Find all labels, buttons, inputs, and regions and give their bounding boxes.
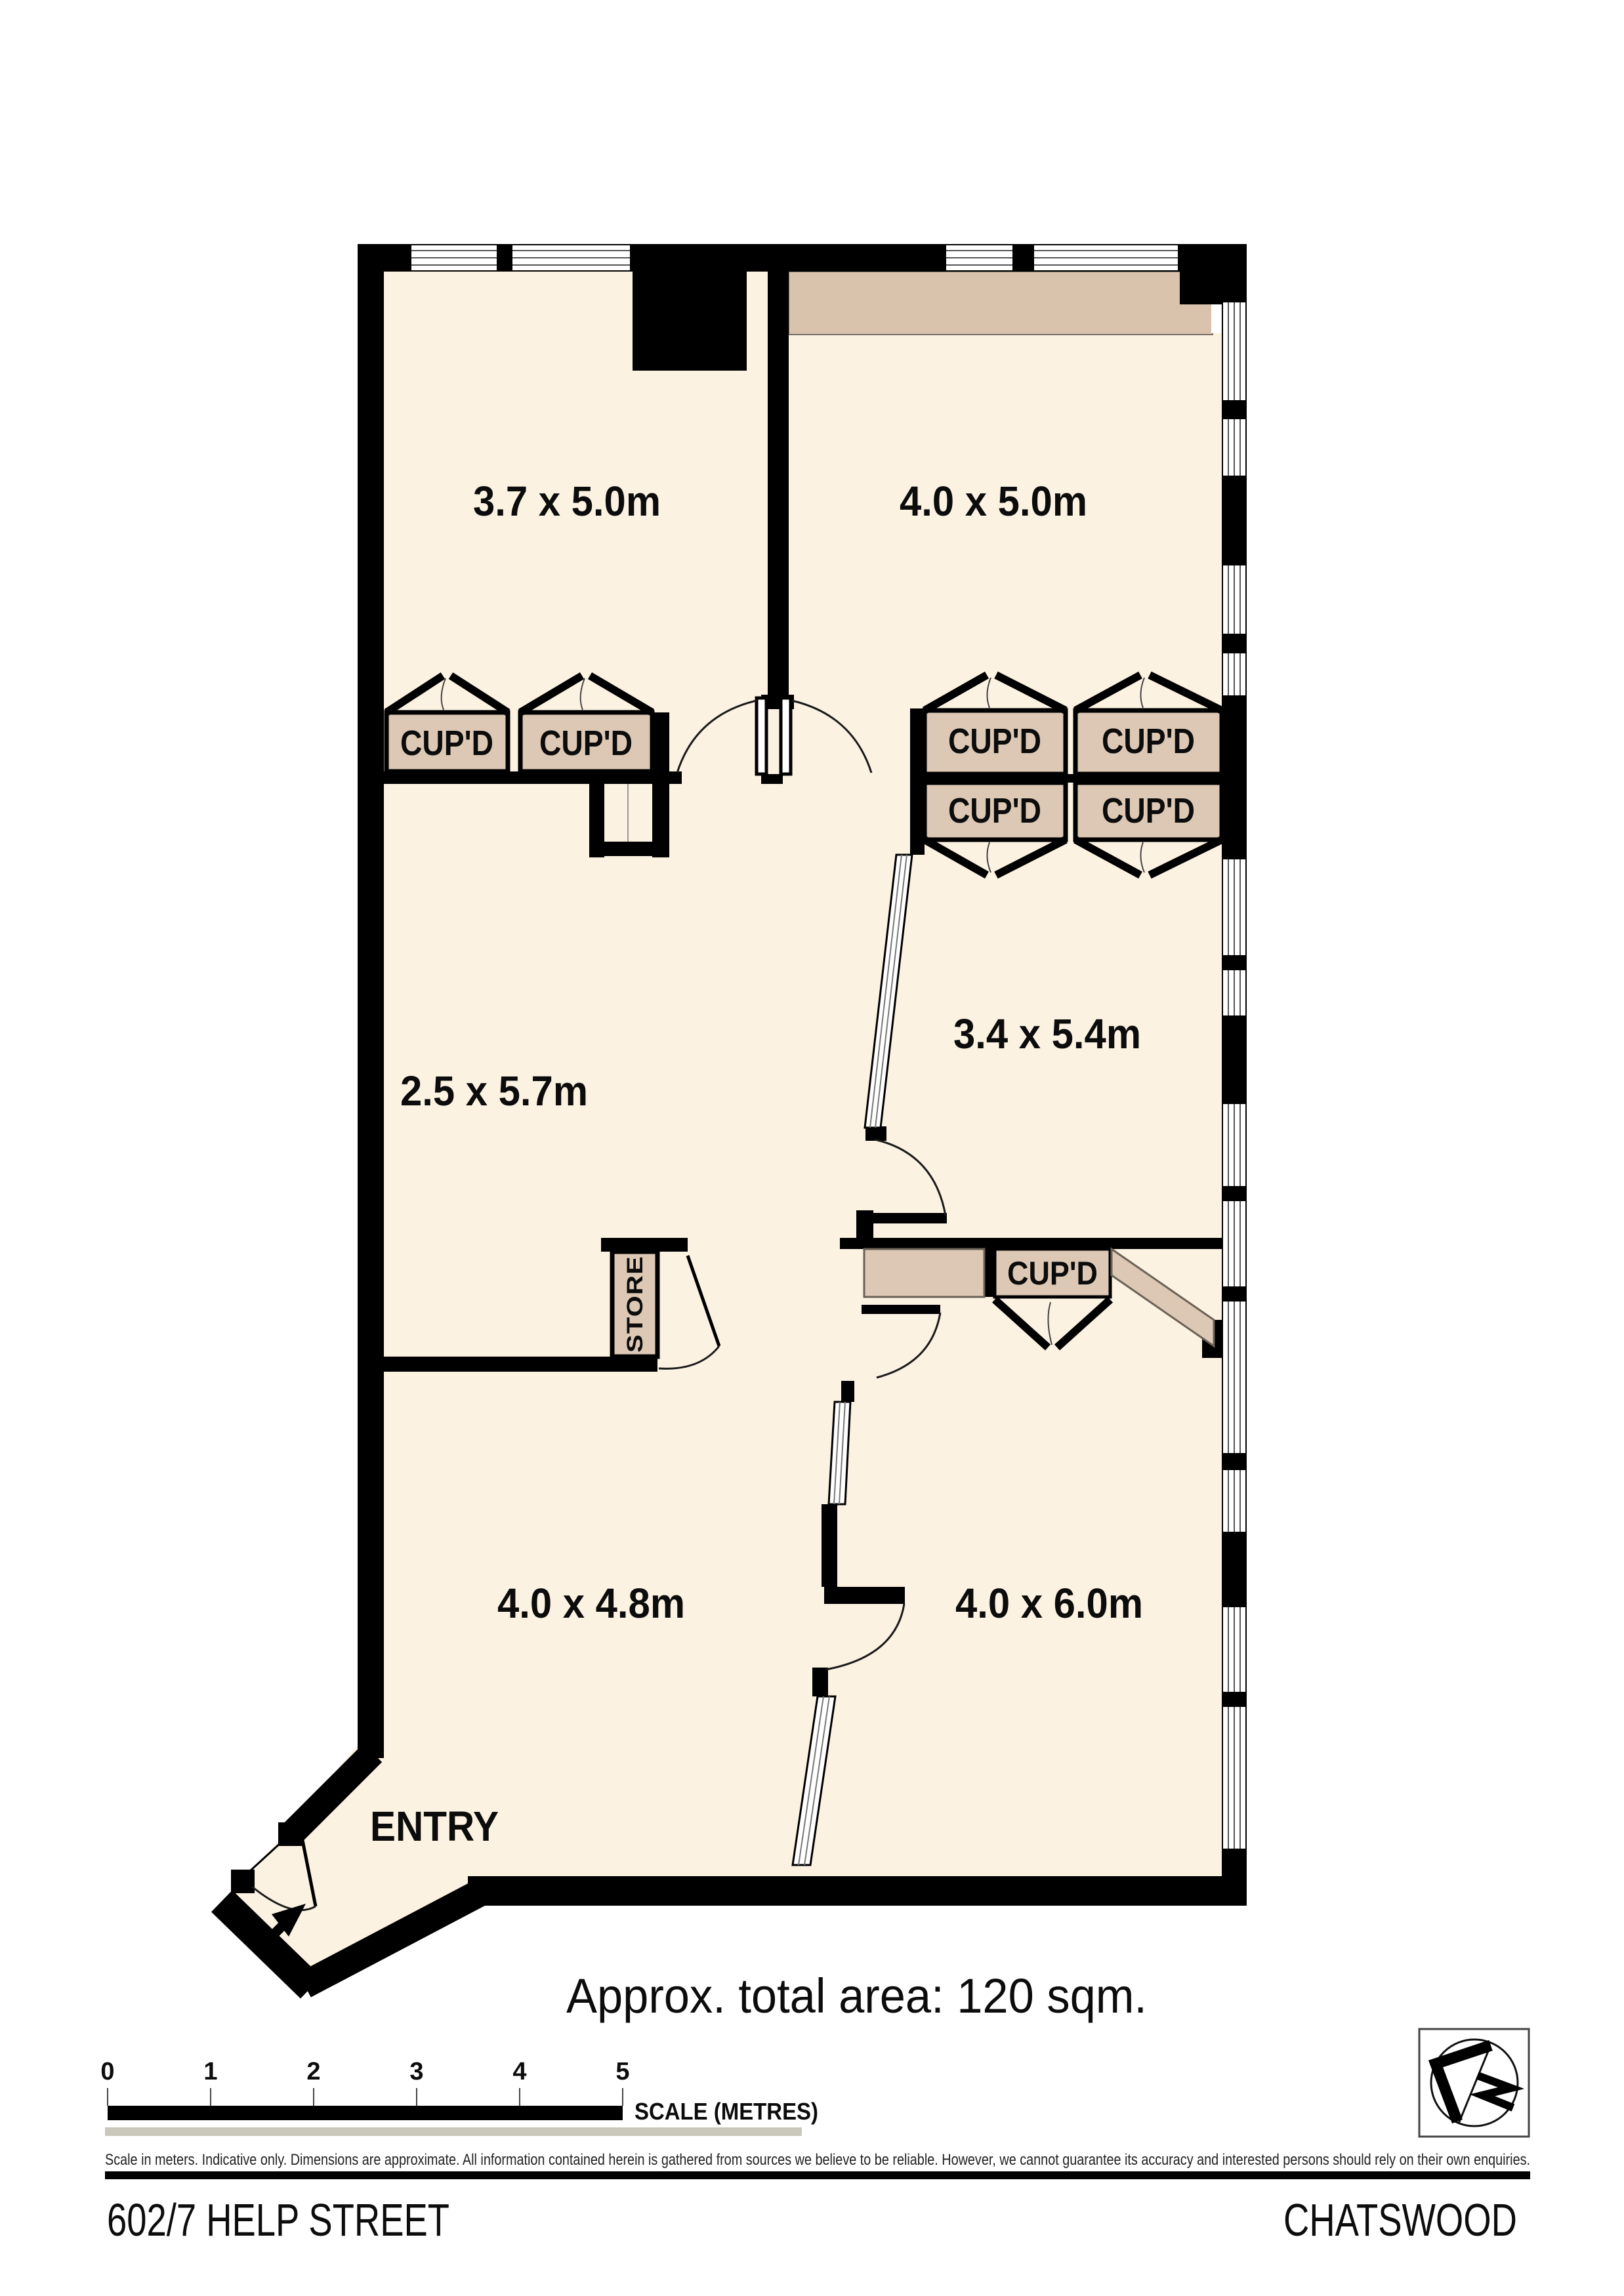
wall-bottom — [468, 1876, 1247, 1906]
cupboard-label: CUP'D — [539, 724, 633, 763]
wall-jamb-3 — [812, 1668, 828, 1696]
wall-left — [358, 244, 384, 1758]
room-label-top-right: 4.0 x 5.0m — [900, 478, 1087, 525]
window — [1223, 419, 1245, 476]
scale-tick-label: 4 — [512, 2058, 526, 2085]
scale-label: SCALE (METRES) — [635, 2098, 818, 2125]
scale-tick-label: 0 — [100, 2058, 114, 2085]
room-label-hallway: 2.5 x 5.7m — [400, 1067, 588, 1115]
door-leaf — [757, 698, 766, 774]
wall-spine-seg — [822, 1504, 837, 1587]
cupboard-label: CUP'D — [400, 724, 493, 763]
wall-top-pier — [633, 244, 747, 371]
window — [1223, 970, 1245, 1015]
bulkhead-band — [789, 272, 1213, 335]
window — [1223, 653, 1245, 695]
scale-ticks — [108, 2088, 623, 2106]
footer: 602/7 HELP STREET CHATSWOOD — [107, 2194, 1517, 2245]
window — [411, 245, 497, 270]
window — [1223, 1302, 1245, 1453]
entry-label: ENTRY — [370, 1803, 499, 1850]
scale-tick-label: 1 — [203, 2058, 217, 2085]
floor-plan-page: CUP'D CUP'D CUP'D CUP'D CUP'D CUP'D CUP'… — [0, 0, 1624, 2296]
area-note: Approx. total area: 120 sqm. — [566, 1969, 1147, 2023]
north-indicator — [1419, 2029, 1529, 2137]
cupboard-label: CUP'D — [1102, 791, 1195, 830]
entry-door-jamb-b — [231, 1870, 255, 1893]
wall-stub-b — [862, 1305, 940, 1314]
window — [946, 245, 1012, 270]
scale-tick-label: 3 — [409, 2058, 423, 2085]
window — [1223, 1707, 1245, 1849]
cupboard-label: CUP'D — [948, 722, 1041, 761]
door-cap — [761, 774, 783, 784]
scale-bar-shadow — [105, 2127, 802, 2136]
scale-tick-label: 2 — [306, 2058, 320, 2085]
door-leaf — [781, 698, 791, 774]
scale-bar-rect — [108, 2106, 623, 2120]
footer-suburb: CHATSWOOD — [1283, 2194, 1517, 2245]
room-label-bottom-right: 4.0 x 6.0m — [955, 1580, 1143, 1627]
wall-stub-c — [824, 1587, 905, 1604]
disclaimer: Scale in meters. Indicative only. Dimens… — [105, 2151, 1530, 2169]
wall-cupboard-left-cap — [652, 712, 669, 784]
scale-bar: 0 1 2 3 4 5 SCALE (METRES) — [100, 2058, 818, 2136]
footer-divider — [105, 2171, 1530, 2179]
room-label-bottom-left: 4.0 x 4.8m — [497, 1580, 685, 1627]
window — [1223, 565, 1245, 634]
window — [512, 245, 630, 270]
wall-niche-bottom — [589, 842, 669, 856]
window — [1223, 1201, 1245, 1286]
scale-tick-label: 5 — [615, 2058, 629, 2085]
room-label-top-left: 3.7 x 5.0m — [473, 478, 661, 525]
window — [1223, 1470, 1245, 1532]
window — [1034, 245, 1178, 270]
footer-address: 602/7 HELP STREET — [107, 2194, 449, 2245]
cupboard-label: CUP'D — [1102, 722, 1195, 761]
floor-plan-canvas: CUP'D CUP'D CUP'D CUP'D CUP'D CUP'D CUP'… — [0, 0, 1624, 2296]
window — [1223, 1607, 1245, 1692]
store-label: STORE — [623, 1256, 648, 1353]
cupboard-label: CUP'D — [948, 791, 1041, 830]
wall-top-right-step — [1180, 272, 1222, 304]
wall-jamb-2 — [841, 1381, 854, 1402]
cupboard-label: CUP'D — [1007, 1255, 1098, 1292]
window — [1223, 302, 1245, 400]
wall-room-divider — [768, 272, 789, 696]
window — [1223, 1104, 1245, 1186]
bench-box — [864, 1249, 984, 1297]
top-room-bulkhead — [789, 272, 1221, 335]
wall-middle-horizontal — [840, 1238, 1222, 1249]
window — [1223, 859, 1245, 955]
room-label-middle-right: 3.4 x 5.4m — [953, 1010, 1141, 1057]
